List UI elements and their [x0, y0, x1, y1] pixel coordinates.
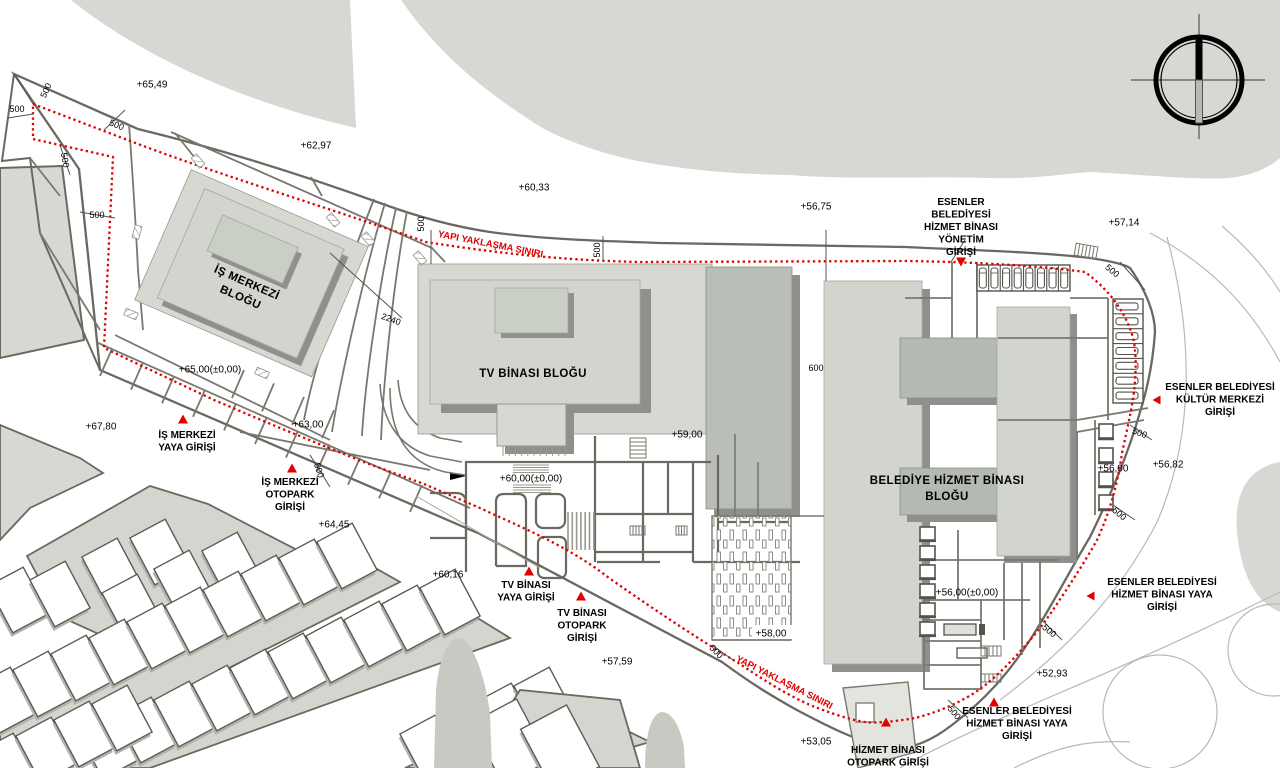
svg-text:+56,00(±0,00): +56,00(±0,00): [936, 588, 998, 599]
svg-text:+60,00(±0,00): +60,00(±0,00): [500, 474, 562, 485]
svg-text:OTOPARK GİRİŞİ: OTOPARK GİRİŞİ: [847, 756, 929, 768]
svg-text:OTOPARK: OTOPARK: [557, 621, 607, 632]
svg-text:+67,80: +67,80: [86, 422, 117, 433]
svg-text:HİZMET BİNASI YAYA: HİZMET BİNASI YAYA: [1111, 588, 1213, 601]
svg-text:+62,97: +62,97: [301, 141, 332, 152]
svg-text:+57,59: +57,59: [602, 657, 633, 668]
svg-text:500: 500: [89, 210, 104, 220]
svg-text:YÖNETİM: YÖNETİM: [938, 233, 984, 246]
svg-text:+52,93: +52,93: [1037, 669, 1068, 680]
svg-text:OTOPARK: OTOPARK: [265, 490, 315, 501]
svg-text:+57,14: +57,14: [1109, 218, 1140, 229]
svg-text:KÜLTÜR MERKEZİ: KÜLTÜR MERKEZİ: [1176, 393, 1264, 406]
svg-text:500: 500: [592, 242, 602, 257]
svg-text:GİRİŞİ: GİRİŞİ: [1147, 600, 1177, 613]
svg-text:TV BİNASI BLOĞU: TV BİNASI BLOĞU: [479, 367, 587, 380]
svg-text:GİRİŞİ: GİRİŞİ: [946, 245, 976, 258]
svg-text:+59,00: +59,00: [672, 430, 703, 441]
svg-text:+56,00: +56,00: [1098, 464, 1129, 475]
svg-text:ESENLER BELEDİYESİ: ESENLER BELEDİYESİ: [1107, 575, 1217, 588]
svg-text:+53,05: +53,05: [801, 737, 832, 748]
svg-text:TV BİNASI: TV BİNASI: [501, 578, 551, 591]
svg-text:BLOĞU: BLOĞU: [925, 490, 969, 503]
svg-text:ESENLER: ESENLER: [937, 197, 985, 208]
svg-text:YAYA GİRİŞİ: YAYA GİRİŞİ: [158, 441, 216, 454]
svg-text:+63,00: +63,00: [293, 420, 324, 431]
svg-text:+58,00: +58,00: [756, 629, 787, 640]
svg-text:İŞ MERKEZİ: İŞ MERKEZİ: [158, 428, 215, 441]
svg-text:500: 500: [9, 104, 24, 114]
svg-text:HİZMET BİNASI YAYA: HİZMET BİNASI YAYA: [966, 717, 1068, 730]
svg-text:600: 600: [808, 363, 823, 373]
svg-text:HİZMET BİNASI: HİZMET BİNASI: [924, 220, 998, 233]
svg-text:BELEDİYESİ: BELEDİYESİ: [931, 208, 991, 221]
svg-text:TV BİNASI: TV BİNASI: [557, 606, 607, 619]
svg-text:+65,00(±0,00): +65,00(±0,00): [179, 365, 241, 376]
svg-text:GİRİŞİ: GİRİŞİ: [1002, 729, 1032, 742]
svg-text:GİRİŞİ: GİRİŞİ: [567, 631, 597, 644]
svg-text:500: 500: [416, 216, 426, 231]
svg-text:GİRİŞİ: GİRİŞİ: [1205, 405, 1235, 418]
svg-text:+64,45: +64,45: [319, 520, 350, 531]
svg-text:BELEDİYE HİZMET BİNASI: BELEDİYE HİZMET BİNASI: [870, 474, 1024, 487]
svg-text:+56,75: +56,75: [801, 202, 832, 213]
svg-text:YAYA GİRİŞİ: YAYA GİRİŞİ: [497, 591, 555, 604]
svg-text:ESENLER BELEDİYESİ: ESENLER BELEDİYESİ: [1165, 380, 1275, 393]
svg-text:HİZMET BİNASI: HİZMET BİNASI: [851, 743, 925, 756]
svg-text:+56,82: +56,82: [1153, 460, 1184, 471]
svg-text:İŞ MERKEZİ: İŞ MERKEZİ: [261, 475, 318, 488]
svg-text:+60,16: +60,16: [433, 570, 464, 581]
svg-text:GİRİŞİ: GİRİŞİ: [275, 500, 305, 513]
svg-text:ESENLER BELEDİYESİ: ESENLER BELEDİYESİ: [962, 704, 1072, 717]
svg-text:+65,49: +65,49: [137, 80, 168, 91]
svg-text:+60,33: +60,33: [519, 183, 550, 194]
